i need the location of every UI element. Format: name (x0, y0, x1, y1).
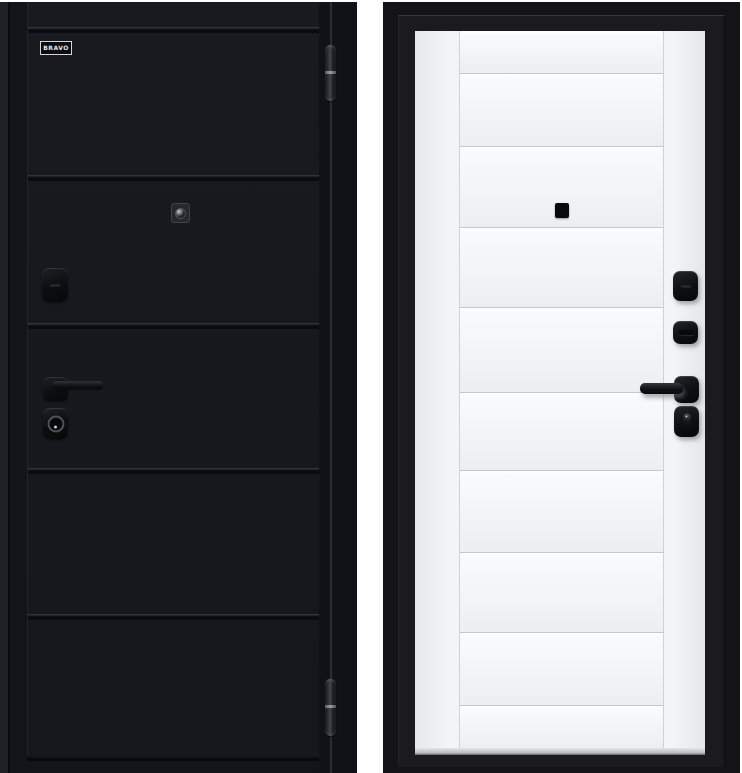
leaf-panel (460, 392, 663, 470)
door-leaf-black (27, 2, 320, 756)
door-hinge-edge-strip (0, 2, 10, 773)
peephole (171, 203, 190, 223)
thumbturn-pill (678, 329, 693, 336)
peephole (555, 203, 569, 218)
thumbturn-knob (683, 413, 690, 430)
panel-line (460, 227, 663, 228)
door-leaf-white (415, 31, 705, 748)
panel-line (460, 146, 663, 147)
panel-line (460, 392, 663, 393)
door-hinge-top (325, 45, 336, 101)
panel-groove (28, 468, 320, 475)
door-interior-white (383, 2, 740, 773)
hinge-band (325, 705, 336, 708)
leaf-panel (460, 705, 663, 748)
lock-slot (680, 285, 691, 288)
leaf-panel (460, 552, 663, 632)
door-bottom-edge (27, 758, 319, 761)
panel-groove (28, 27, 320, 34)
door-lock-edge-strip (319, 2, 357, 773)
latch-slot (50, 284, 61, 287)
keyway-dot (54, 425, 57, 428)
leaf-panel (460, 227, 663, 307)
panel-groove (28, 323, 320, 330)
leaf-panel (460, 31, 663, 73)
door-hinge-bottom (325, 679, 336, 736)
knob-highlight (686, 415, 688, 417)
brand-label: BRAVO (43, 45, 69, 51)
peephole-lens (175, 208, 186, 219)
panel-line (460, 705, 663, 706)
latch-cover (42, 268, 68, 302)
door-sill (415, 748, 705, 755)
cylinder-escutcheon (43, 408, 68, 439)
leaf-panel (460, 73, 663, 146)
panel-line (460, 73, 663, 74)
leaf-panel (460, 632, 663, 705)
brand-plate: BRAVO (40, 41, 72, 55)
panel-line (460, 307, 663, 308)
hinge-band (325, 71, 336, 74)
panel-line (460, 470, 663, 471)
product-photo: BRAVO (0, 0, 742, 773)
panel-groove (28, 614, 320, 621)
panel-line (460, 552, 663, 553)
leaf-stile-left (415, 31, 460, 748)
leaf-panel (460, 470, 663, 552)
panel-line (460, 632, 663, 633)
thumbturn-upper (673, 321, 698, 344)
door-exterior-black: BRAVO (0, 2, 357, 773)
keyway-ring (47, 415, 64, 432)
leaf-panel (460, 307, 663, 392)
lever-handle (52, 381, 103, 390)
lever-handle (640, 383, 683, 394)
edge-highlight (330, 2, 332, 773)
lock-cover (673, 271, 698, 301)
panel-groove (28, 175, 320, 182)
thumbturn-lower (674, 406, 699, 437)
